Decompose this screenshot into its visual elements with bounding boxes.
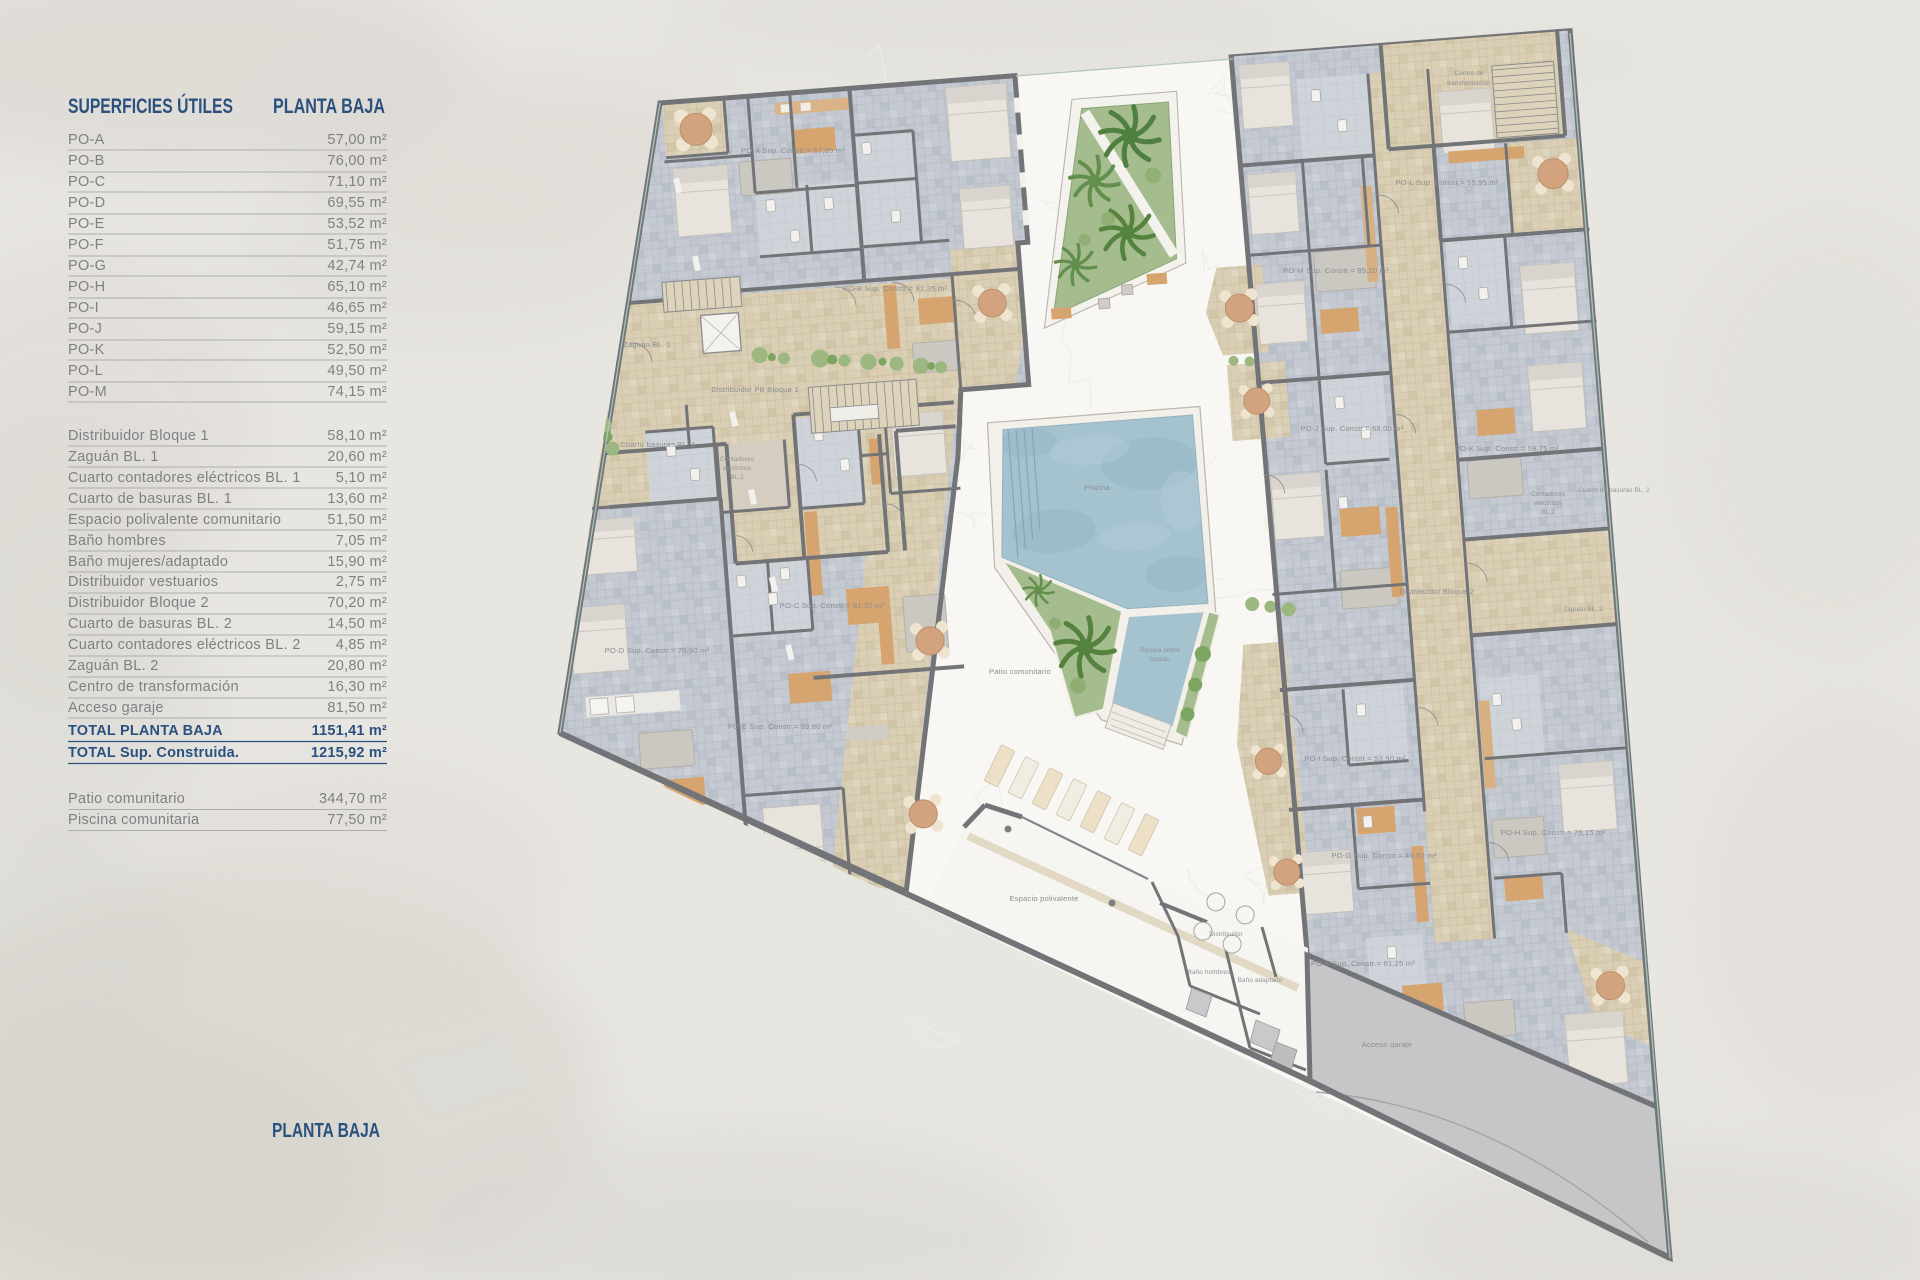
svg-text:Distribuidor vestuarios: Distribuidor vestuarios <box>68 574 218 590</box>
svg-text:Distribuidor PB Bloque 1: Distribuidor PB Bloque 1 <box>711 385 799 394</box>
svg-text:PO-M Sup. Constr.= 85,20 m²: PO-M Sup. Constr.= 85,20 m² <box>1283 266 1389 275</box>
svg-text:PO-C Sup. Constr.= 81,32 m²: PO-C Sup. Constr.= 81,32 m² <box>780 601 885 610</box>
svg-text:Patio comunitario: Patio comunitario <box>989 667 1051 676</box>
svg-text:Zaguán BL. 1: Zaguán BL. 1 <box>623 340 671 349</box>
svg-text:Cuarto contadores eléctricos B: Cuarto contadores eléctricos BL. 1 <box>68 470 301 486</box>
svg-text:PO-I: PO-I <box>68 300 99 316</box>
svg-text:PO-G: PO-G <box>68 258 106 274</box>
svg-text:Distribuidor Bloque 2: Distribuidor Bloque 2 <box>68 595 209 611</box>
svg-text:PO-H: PO-H <box>68 279 105 295</box>
svg-text:Zaguán BL. 2: Zaguán BL. 2 <box>1563 606 1603 613</box>
svg-text:PO-C: PO-C <box>68 174 105 190</box>
svg-text:Espacio polivalente comunitari: Espacio polivalente comunitario <box>68 512 281 528</box>
svg-text:BL.1: BL.1 <box>730 474 744 481</box>
svg-text:eléctricos: eléctricos <box>723 465 751 472</box>
svg-text:65,10 m²: 65,10 m² <box>327 279 387 295</box>
svg-text:Contadores: Contadores <box>720 456 754 463</box>
svg-text:Patio comunitario: Patio comunitario <box>68 791 185 807</box>
svg-text:20,60 m²: 20,60 m² <box>327 449 387 465</box>
svg-text:BL.2: BL.2 <box>1541 509 1555 516</box>
svg-text:15,90 m²: 15,90 m² <box>327 554 387 570</box>
svg-text:Contadores: Contadores <box>1531 491 1565 498</box>
svg-text:Acceso garaje: Acceso garaje <box>68 700 164 716</box>
svg-text:PO-L Sup. Constr.= 55,95 m²: PO-L Sup. Constr.= 55,95 m² <box>1395 178 1499 187</box>
svg-text:76,00 m²: 76,00 m² <box>327 153 387 169</box>
svg-text:PO-I Sup. Constr.= 53,90 m²: PO-I Sup. Constr.= 53,90 m² <box>1304 754 1406 763</box>
svg-text:46,65 m²: 46,65 m² <box>327 300 387 316</box>
svg-text:Centro de transformación: Centro de transformación <box>68 679 239 695</box>
svg-text:TOTAL PLANTA BAJA: TOTAL PLANTA BAJA <box>68 723 223 739</box>
svg-text:PO-J: PO-J <box>68 321 102 337</box>
svg-text:51,50 m²: 51,50 m² <box>327 512 387 528</box>
svg-text:74,15 m²: 74,15 m² <box>327 384 387 400</box>
svg-text:Cuarto basuras BL. 1: Cuarto basuras BL. 1 <box>620 440 696 449</box>
svg-text:344,70 m²: 344,70 m² <box>319 791 387 807</box>
svg-text:52,50 m²: 52,50 m² <box>327 342 387 358</box>
svg-text:77,50 m²: 77,50 m² <box>327 812 387 828</box>
svg-text:Piscina comunitaria: Piscina comunitaria <box>68 812 200 828</box>
svg-text:PO-A Sup. Constr.= 67,65 m²: PO-A Sup. Constr.= 67,65 m² <box>741 146 845 155</box>
svg-text:PO-D Sup. Constr.= 70,90 m²: PO-D Sup. Constr.= 70,90 m² <box>605 646 710 655</box>
svg-text:1151,41 m²: 1151,41 m² <box>312 723 387 739</box>
svg-text:Cuarto de basuras BL. 2: Cuarto de basuras BL. 2 <box>68 616 232 632</box>
svg-text:69,55 m²: 69,55 m² <box>327 195 387 211</box>
svg-text:Piscina: Piscina <box>1084 483 1110 492</box>
svg-text:PO-M: PO-M <box>68 384 107 400</box>
svg-text:14,50 m²: 14,50 m² <box>327 616 387 632</box>
svg-text:PO-L: PO-L <box>68 363 103 379</box>
svg-text:57,00 m²: 57,00 m² <box>327 132 387 148</box>
svg-text:42,74 m²: 42,74 m² <box>327 258 387 274</box>
svg-text:Cuarto contadores eléctricos B: Cuarto contadores eléctricos BL. 2 <box>68 637 301 653</box>
svg-text:70,20 m²: 70,20 m² <box>327 595 387 611</box>
svg-text:59,15 m²: 59,15 m² <box>327 321 387 337</box>
svg-text:tocado: tocado <box>1150 656 1170 663</box>
svg-text:Zaguán BL. 1: Zaguán BL. 1 <box>68 449 159 465</box>
svg-text:Espacio polivalente: Espacio polivalente <box>1009 894 1078 903</box>
svg-text:16,30 m²: 16,30 m² <box>327 679 387 695</box>
svg-text:Baño mujeres/adaptado: Baño mujeres/adaptado <box>68 554 228 570</box>
svg-text:20,80 m²: 20,80 m² <box>327 658 387 674</box>
svg-text:Acceso garaje: Acceso garaje <box>1362 1040 1413 1049</box>
svg-text:PO-K Sup. Constr.= 59,75 m²: PO-K Sup. Constr.= 59,75 m² <box>1455 444 1560 453</box>
svg-text:PLANTA BAJA: PLANTA BAJA <box>273 95 385 118</box>
svg-text:49,50 m²: 49,50 m² <box>327 363 387 379</box>
svg-text:eléctricos: eléctricos <box>1534 500 1562 507</box>
svg-text:Centro de: Centro de <box>1455 70 1484 77</box>
svg-text:Piscina sobre: Piscina sobre <box>1140 647 1180 654</box>
svg-text:PO-K: PO-K <box>68 342 105 358</box>
svg-text:TOTAL Sup. Construida.: TOTAL Sup. Construida. <box>68 745 239 761</box>
svg-text:2,75 m²: 2,75 m² <box>336 574 387 590</box>
svg-text:PO-B: PO-B <box>68 153 105 169</box>
svg-text:Zaguán BL. 2: Zaguán BL. 2 <box>68 658 159 674</box>
svg-text:53,52 m²: 53,52 m² <box>327 216 387 232</box>
svg-text:7,05 m²: 7,05 m² <box>336 533 387 549</box>
svg-text:81,50 m²: 81,50 m² <box>327 700 387 716</box>
svg-text:Cuarto de basuras BL. 1: Cuarto de basuras BL. 1 <box>68 491 232 507</box>
svg-text:71,10 m²: 71,10 m² <box>327 174 387 190</box>
svg-text:PO-H Sup. Constr.= 75,15 m²: PO-H Sup. Constr.= 75,15 m² <box>1501 828 1606 837</box>
svg-text:PO-D: PO-D <box>68 195 105 211</box>
svg-text:58,10 m²: 58,10 m² <box>327 428 387 444</box>
svg-text:PO-A: PO-A <box>68 132 105 148</box>
svg-text:PO-J Sup. Constr.= 68,00 m²: PO-J Sup. Constr.= 68,00 m² <box>1300 424 1403 433</box>
svg-text:PO-F: PO-F <box>68 237 104 253</box>
svg-text:Baño adaptado: Baño adaptado <box>1238 977 1283 984</box>
svg-text:Baño hombres: Baño hombres <box>68 533 166 549</box>
svg-text:PO-G Sup. Constr.= 49,82 m²: PO-G Sup. Constr.= 49,82 m² <box>1331 851 1436 860</box>
svg-text:PO-E: PO-E <box>68 216 105 232</box>
svg-text:Distribuidor: Distribuidor <box>1209 931 1243 938</box>
svg-text:5,10 m²: 5,10 m² <box>336 470 387 486</box>
svg-text:1215,92 m²: 1215,92 m² <box>311 745 387 761</box>
svg-text:4,85 m²: 4,85 m² <box>336 637 387 653</box>
svg-text:PLANTA BAJA: PLANTA BAJA <box>272 1120 380 1142</box>
svg-text:SUPERFICIES ÚTILES: SUPERFICIES ÚTILES <box>68 94 233 118</box>
svg-text:Distribuidor Bloque 1: Distribuidor Bloque 1 <box>68 428 209 444</box>
svg-text:Cuarto de basuras BL. 2: Cuarto de basuras BL. 2 <box>1578 487 1650 494</box>
svg-text:PO-F Sup. Constr.= 61,25 m²: PO-F Sup. Constr.= 61,25 m² <box>1311 959 1415 968</box>
svg-text:PO-E Sup. Constr.= 59,80 m²: PO-E Sup. Constr.= 59,80 m² <box>728 722 833 731</box>
svg-text:PO-B Sup. Constr.= 82,35 m²: PO-B Sup. Constr.= 82,35 m² <box>843 284 948 293</box>
svg-text:transformación: transformación <box>1447 80 1491 87</box>
svg-text:Distribuidor Bloque 2: Distribuidor Bloque 2 <box>1400 587 1475 596</box>
svg-text:13,60 m²: 13,60 m² <box>327 491 387 507</box>
svg-text:Baño hombres: Baño hombres <box>1188 969 1231 976</box>
svg-text:51,75 m²: 51,75 m² <box>327 237 387 253</box>
